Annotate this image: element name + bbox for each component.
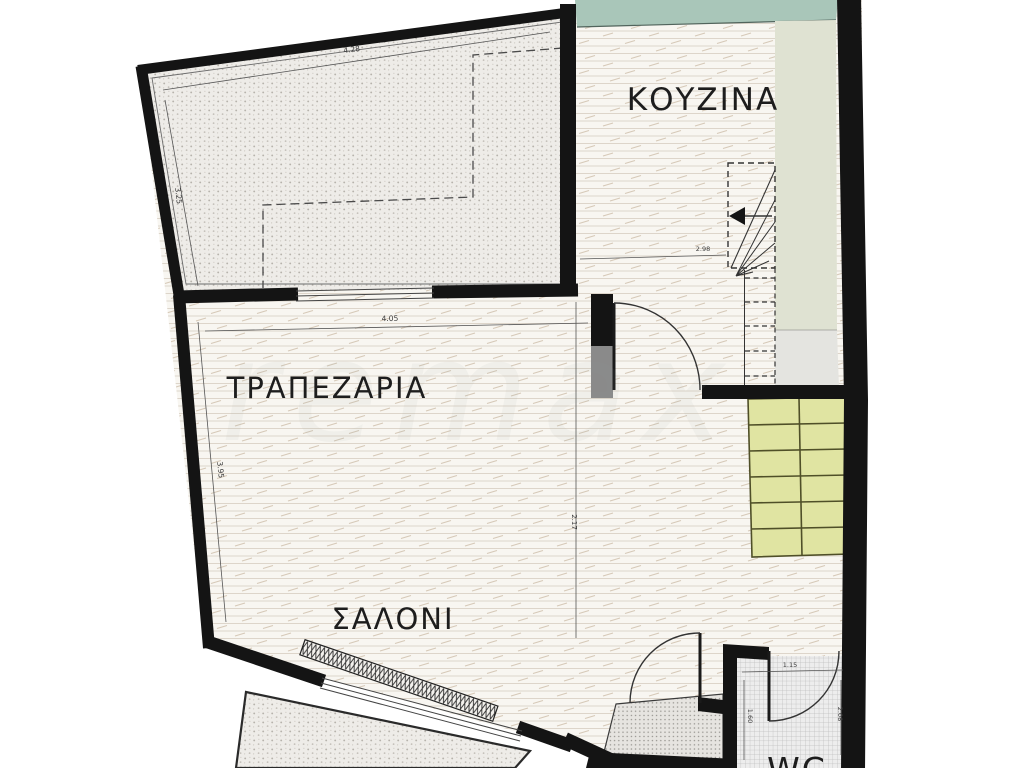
svg-text:2.98: 2.98: [696, 245, 710, 253]
dining-label: ΤΡΑΠΕΖΑΡΙΑ: [226, 371, 428, 405]
stair-landing-block: [775, 330, 839, 388]
svg-text:2.17: 2.17: [570, 514, 578, 530]
kitchen-label: ΚΟΥΖΙΝΑ: [627, 82, 779, 118]
living-label: ΣΑΛΟΝΙ: [331, 602, 454, 636]
stairs-lower-flight: [748, 397, 849, 557]
floor-plan: 4.28 3.25 4.05 3.95 2.17 2.98 1.15 1.60 …: [0, 0, 1024, 768]
floor-plan-page: 4.28 3.25 4.05 3.95 2.17 2.98 1.15 1.60 …: [0, 0, 1024, 768]
svg-text:1.60: 1.60: [746, 709, 754, 723]
svg-text:2.08: 2.08: [836, 707, 844, 721]
wc-label: WC: [767, 750, 827, 768]
svg-text:1.15: 1.15: [783, 661, 797, 669]
terrace-area: [143, 13, 568, 290]
kitchen-counter-strip: [775, 20, 837, 330]
